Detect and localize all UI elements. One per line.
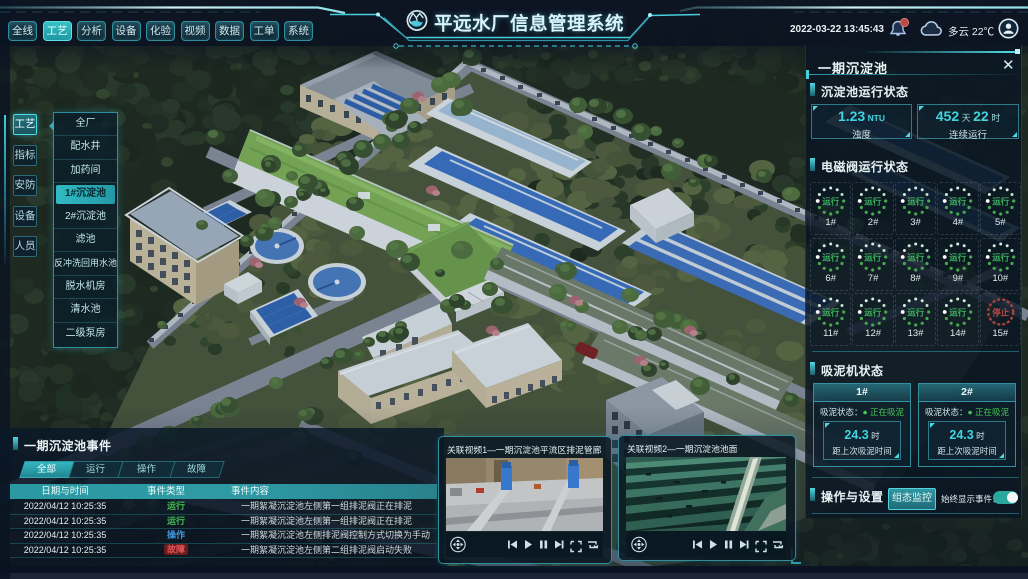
svg-text:运行: 运行	[907, 197, 925, 207]
svg-text:运行: 运行	[865, 197, 883, 207]
svg-text:运行: 运行	[949, 252, 967, 262]
svg-text:停止: 停止	[992, 308, 1010, 318]
svg-text:运行: 运行	[949, 197, 967, 207]
svg-text:运行: 运行	[907, 252, 925, 262]
svg-text:运行: 运行	[822, 197, 840, 207]
svg-text:运行: 运行	[865, 252, 883, 262]
svg-text:运行: 运行	[907, 308, 925, 318]
svg-text:运行: 运行	[822, 252, 840, 262]
svg-text:运行: 运行	[949, 308, 967, 318]
svg-text:运行: 运行	[992, 197, 1010, 207]
svg-text:运行: 运行	[992, 252, 1010, 262]
svg-text:运行: 运行	[865, 308, 883, 318]
svg-text:运行: 运行	[822, 308, 840, 318]
